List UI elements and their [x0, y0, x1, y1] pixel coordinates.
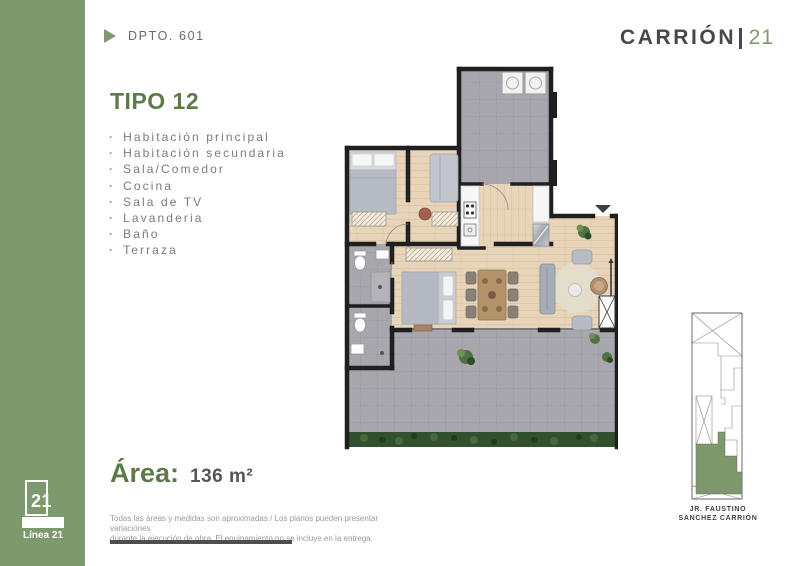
brand-name: CARRIÓN — [620, 26, 736, 50]
linea21-logo: 21 Línea 21 — [22, 480, 68, 542]
toilet-icon — [355, 256, 366, 270]
feature-item: Cocina — [109, 178, 286, 194]
feature-item: Sala/Comedor — [109, 161, 286, 177]
brand-number: 21 — [749, 26, 774, 50]
brand-separator-bar — [739, 28, 742, 49]
sink-icon — [464, 224, 476, 236]
unit-label: DPTO. 601 — [128, 29, 205, 43]
stove-icon — [464, 202, 476, 218]
feature-item: Habitación secundaria — [109, 145, 286, 161]
entrance-arrow-icon — [595, 205, 611, 213]
feature-item: Terraza — [109, 242, 286, 258]
key-plan-drawing — [688, 310, 746, 502]
toilet-icon — [355, 318, 366, 332]
wall-column — [551, 160, 557, 186]
floor-plan-drawing — [344, 66, 618, 450]
closet-icon — [432, 212, 458, 226]
floor-plan — [344, 66, 618, 455]
dining-set-icon — [466, 270, 518, 320]
brand-logo: CARRIÓN 21 — [620, 26, 774, 50]
unit-header: DPTO. 601 — [104, 29, 205, 43]
closet-icon — [352, 212, 386, 226]
main-bed-icon — [402, 272, 456, 331]
area-row: Área: 136 m² — [110, 458, 253, 489]
ottoman-icon — [419, 208, 431, 220]
street-line-2: SANCHEZ CARRIÓN — [658, 514, 778, 523]
logo-text: Línea 21 — [23, 530, 63, 541]
logo-bar — [22, 517, 64, 528]
feature-item: Lavanderia — [109, 210, 286, 226]
divider-bar — [110, 540, 292, 544]
bench-icon — [414, 325, 432, 331]
page-title: TIPO 12 — [110, 88, 199, 115]
closet-icon — [406, 248, 452, 261]
feature-list: Habitación principal Habitación secundar… — [109, 129, 286, 259]
sofa-icon — [540, 264, 555, 314]
sink-icon — [376, 250, 389, 259]
street-label: JR. FAUSTINO SANCHEZ CARRIÓN — [658, 505, 778, 523]
sink-icon — [351, 344, 364, 354]
disclaimer-line-1: Todas las áreas y medidas son aproximada… — [110, 514, 420, 534]
armchair-icon — [572, 316, 592, 330]
feature-item: Habitación principal — [109, 129, 286, 145]
armchair-icon — [572, 250, 592, 264]
coffee-table-icon — [569, 284, 582, 297]
street-line-1: JR. FAUSTINO — [658, 505, 778, 514]
secondary-bed-icon — [350, 152, 396, 214]
hedge — [347, 432, 617, 447]
feature-item: Baño — [109, 226, 286, 242]
logo-number: 21 — [31, 491, 52, 512]
feature-item: Sala de TV — [109, 194, 286, 210]
right-triangle-icon — [104, 29, 116, 43]
area-label: Área: — [110, 458, 179, 489]
brochure-page: DPTO. 601 CARRIÓN 21 TIPO 12 Habitación … — [0, 0, 800, 566]
area-value: 136 m² — [190, 466, 253, 488]
service-door-icon — [599, 296, 615, 328]
wall-column — [551, 92, 557, 118]
key-plan — [688, 310, 746, 507]
